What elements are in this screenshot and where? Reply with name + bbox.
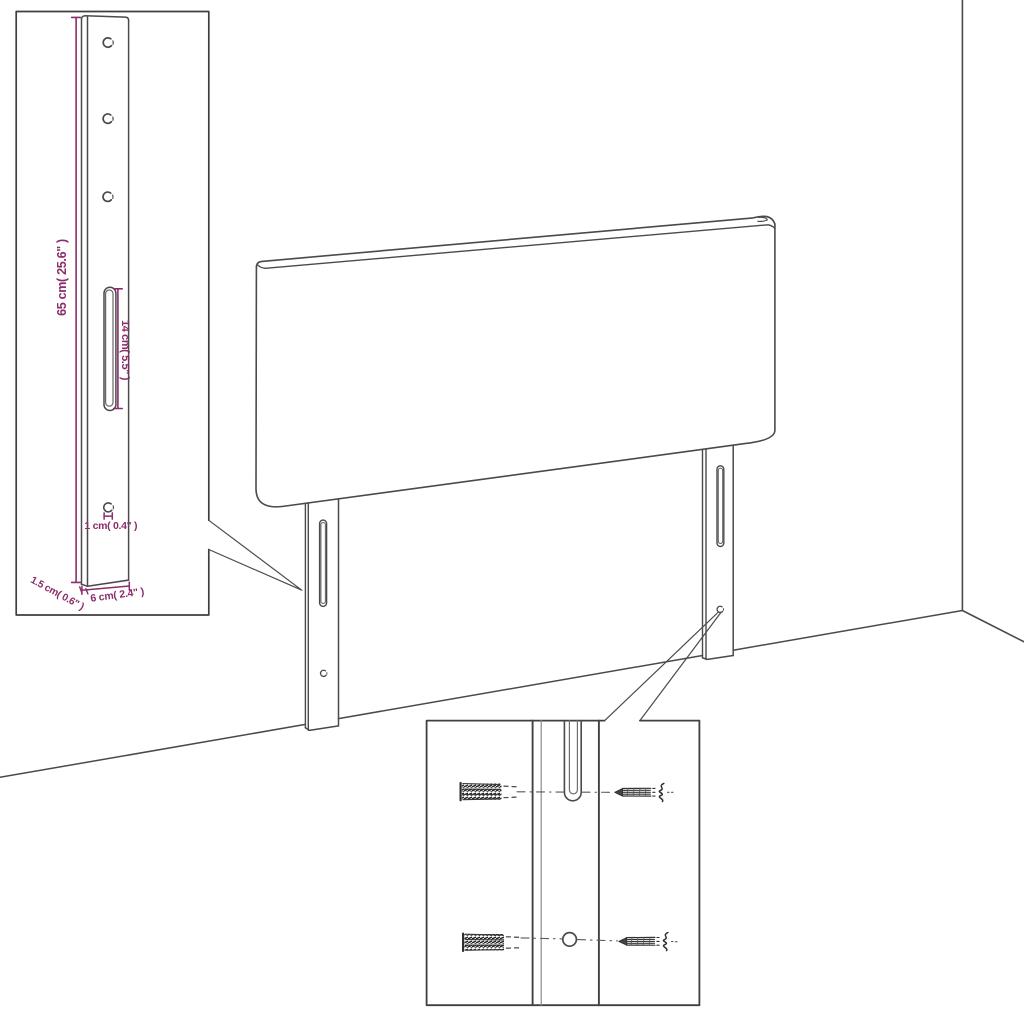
svg-text:65 cm( 25.6" ): 65 cm( 25.6" ) [55, 239, 69, 316]
svg-text:14 cm( 5.5" ): 14 cm( 5.5" ) [119, 320, 131, 381]
svg-text:1 cm( 0.4" ): 1 cm( 0.4" ) [84, 520, 137, 532]
svg-text:1.5 cm( 0.6" ): 1.5 cm( 0.6" ) [28, 575, 85, 613]
